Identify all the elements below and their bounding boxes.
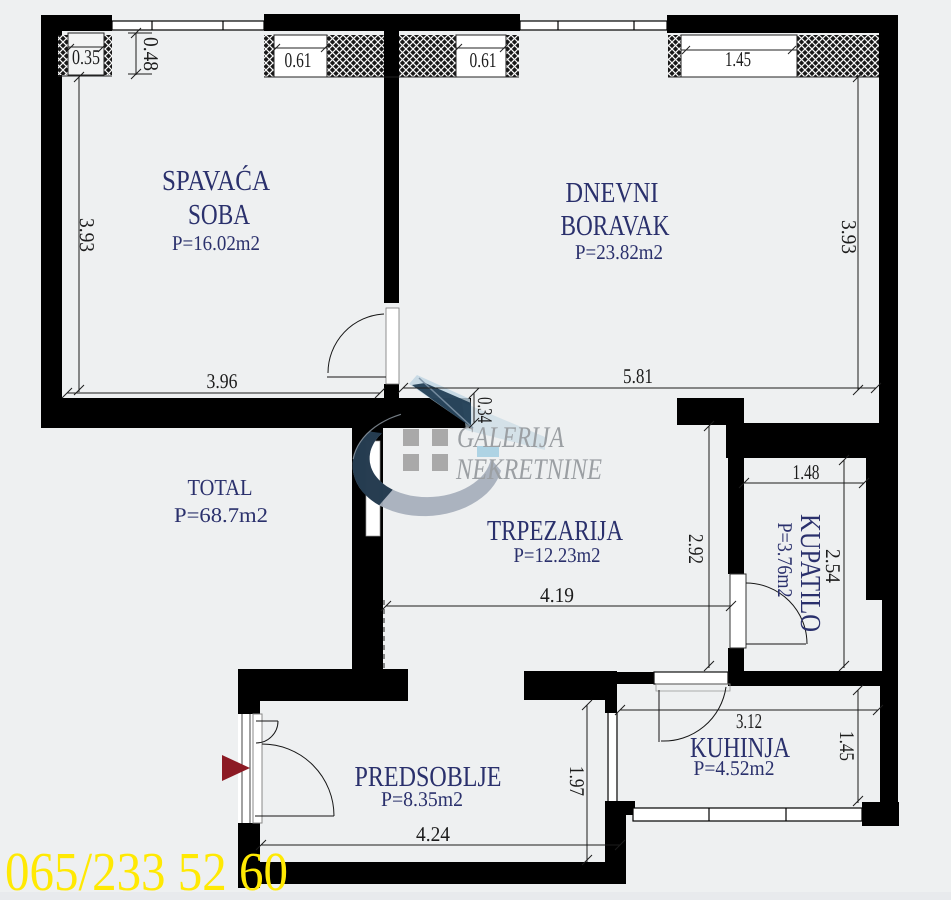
svg-text:KUPATILO: KUPATILO [794, 514, 826, 632]
svg-text:3.93: 3.93 [837, 220, 861, 254]
svg-text:065/233 52 60: 065/233 52 60 [5, 841, 288, 900]
svg-text:P=23.82m2: P=23.82m2 [575, 240, 663, 264]
svg-text:1.97: 1.97 [565, 766, 589, 796]
svg-text:0.35: 0.35 [72, 45, 100, 69]
svg-text:TOTAL: TOTAL [188, 475, 253, 500]
svg-text:0.48: 0.48 [139, 37, 163, 71]
svg-text:DNEVNI: DNEVNI [566, 177, 659, 209]
svg-text:P=4.52m2: P=4.52m2 [694, 756, 775, 780]
svg-text:P=8.35m2: P=8.35m2 [381, 787, 463, 811]
svg-text:P=16.02m2: P=16.02m2 [172, 231, 260, 255]
svg-text:NEKRETNINE: NEKRETNINE [455, 453, 602, 486]
svg-text:BORAVAK: BORAVAK [561, 210, 670, 242]
svg-text:P=3.76m2: P=3.76m2 [773, 523, 797, 598]
svg-text:P=68.7m2: P=68.7m2 [174, 503, 268, 527]
svg-text:P=12.23m2: P=12.23m2 [514, 543, 601, 567]
svg-text:1.45: 1.45 [725, 47, 751, 71]
svg-text:GALERIJA: GALERIJA [457, 421, 565, 454]
svg-text:5.81: 5.81 [623, 364, 653, 388]
svg-text:3.93: 3.93 [75, 218, 99, 252]
svg-text:SPAVAĆA: SPAVAĆA [162, 165, 270, 197]
svg-text:1.45: 1.45 [835, 731, 859, 761]
svg-text:3.96: 3.96 [207, 369, 238, 393]
svg-text:4.19: 4.19 [540, 583, 574, 607]
svg-text:1.48: 1.48 [793, 460, 820, 484]
svg-text:2.92: 2.92 [684, 534, 708, 564]
svg-text:0.61: 0.61 [285, 48, 312, 72]
svg-text:4.24: 4.24 [416, 822, 450, 846]
svg-text:0.34: 0.34 [473, 397, 497, 423]
svg-text:SOBA: SOBA [188, 199, 250, 231]
svg-text:3.12: 3.12 [736, 709, 762, 733]
svg-text:0.61: 0.61 [470, 48, 497, 72]
